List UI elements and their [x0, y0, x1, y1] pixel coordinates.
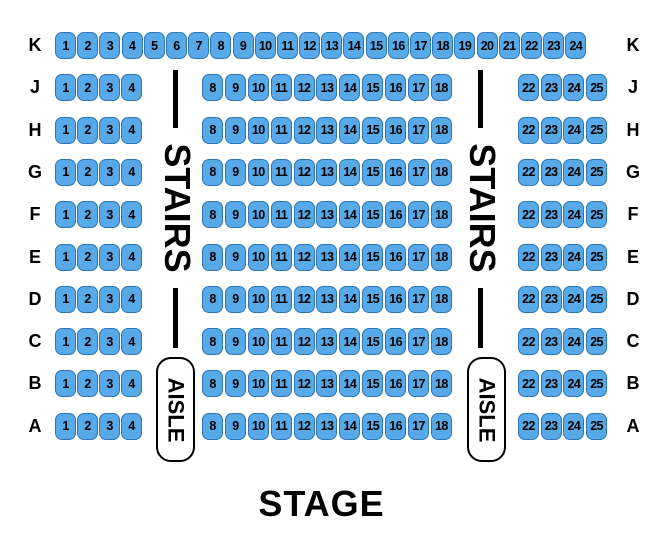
- seat-row-B: B12348910111213141516171822232425B: [0, 370, 660, 397]
- seat-D10[interactable]: 10: [248, 286, 269, 313]
- stairs-line-left-top: [173, 70, 178, 128]
- row-label-H-right: H: [613, 117, 653, 144]
- seat-B14[interactable]: 14: [339, 370, 360, 397]
- seat-K5[interactable]: 5: [144, 32, 165, 59]
- seat-group-E-middle: 89101112131415161718: [202, 244, 452, 271]
- seat-B10[interactable]: 10: [248, 370, 269, 397]
- seat-G25[interactable]: 25: [586, 159, 607, 186]
- seat-group-J-left: 1234: [55, 74, 142, 101]
- seat-B11[interactable]: 11: [271, 370, 292, 397]
- seat-E11[interactable]: 11: [271, 244, 292, 271]
- seat-K20[interactable]: 20: [477, 32, 498, 59]
- seat-F24[interactable]: 24: [563, 201, 584, 228]
- seat-C9[interactable]: 9: [225, 328, 246, 355]
- seat-B15[interactable]: 15: [362, 370, 383, 397]
- seat-C8[interactable]: 8: [202, 328, 223, 355]
- seat-E22[interactable]: 22: [518, 244, 539, 271]
- seat-E13[interactable]: 13: [316, 244, 337, 271]
- seat-F17[interactable]: 17: [408, 201, 429, 228]
- seat-D23[interactable]: 23: [541, 286, 562, 313]
- seat-J25[interactable]: 25: [586, 74, 607, 101]
- seat-E23[interactable]: 23: [541, 244, 562, 271]
- seat-H10[interactable]: 10: [248, 117, 269, 144]
- seat-D25[interactable]: 25: [586, 286, 607, 313]
- seat-C15[interactable]: 15: [362, 328, 383, 355]
- row-label-F-right: F: [613, 201, 653, 228]
- seat-J11[interactable]: 11: [271, 74, 292, 101]
- seat-J15[interactable]: 15: [362, 74, 383, 101]
- seat-K6[interactable]: 6: [166, 32, 187, 59]
- seat-F1[interactable]: 1: [55, 201, 76, 228]
- seat-A13[interactable]: 13: [316, 413, 337, 440]
- seat-H15[interactable]: 15: [362, 117, 383, 144]
- seat-row-K: K123456789101112131415161718192021222324…: [0, 32, 660, 59]
- seat-F11[interactable]: 11: [271, 201, 292, 228]
- row-label-D-left: D: [14, 286, 56, 313]
- seat-B12[interactable]: 12: [294, 370, 315, 397]
- seat-F4[interactable]: 4: [121, 201, 142, 228]
- seat-B3[interactable]: 3: [99, 370, 120, 397]
- seat-C17[interactable]: 17: [408, 328, 429, 355]
- seat-J3[interactable]: 3: [99, 74, 120, 101]
- seat-K7[interactable]: 7: [188, 32, 209, 59]
- seat-J12[interactable]: 12: [294, 74, 315, 101]
- seat-G16[interactable]: 16: [385, 159, 406, 186]
- seat-A22[interactable]: 22: [518, 413, 539, 440]
- seat-K17[interactable]: 17: [410, 32, 431, 59]
- seat-A16[interactable]: 16: [385, 413, 406, 440]
- seat-A18[interactable]: 18: [431, 413, 452, 440]
- seat-E10[interactable]: 10: [248, 244, 269, 271]
- seat-D4[interactable]: 4: [121, 286, 142, 313]
- seat-A14[interactable]: 14: [339, 413, 360, 440]
- aisle-box-left: AISLE: [156, 357, 195, 462]
- stairs-line-right-top: [478, 70, 483, 128]
- row-label-F-left: F: [14, 201, 56, 228]
- seat-group-D-middle: 89101112131415161718: [202, 286, 452, 313]
- row-label-J-left: J: [14, 74, 56, 101]
- seat-H14[interactable]: 14: [339, 117, 360, 144]
- seat-F15[interactable]: 15: [362, 201, 383, 228]
- seat-J8[interactable]: 8: [202, 74, 223, 101]
- seat-group-G-left: 1234: [55, 159, 142, 186]
- seat-J4[interactable]: 4: [121, 74, 142, 101]
- row-label-B-left: B: [14, 370, 56, 397]
- seat-A24[interactable]: 24: [563, 413, 584, 440]
- row-label-G-left: G: [14, 159, 56, 186]
- seat-F18[interactable]: 18: [431, 201, 452, 228]
- seat-D2[interactable]: 2: [77, 286, 98, 313]
- seat-row-J: J12348910111213141516171822232425J: [0, 74, 660, 101]
- seat-C16[interactable]: 16: [385, 328, 406, 355]
- row-label-E-right: E: [613, 244, 653, 271]
- seat-H11[interactable]: 11: [271, 117, 292, 144]
- seat-C22[interactable]: 22: [518, 328, 539, 355]
- seat-F9[interactable]: 9: [225, 201, 246, 228]
- seat-group-A-right: 22232425: [518, 413, 607, 440]
- seat-E16[interactable]: 16: [385, 244, 406, 271]
- seat-C3[interactable]: 3: [99, 328, 120, 355]
- seat-G12[interactable]: 12: [294, 159, 315, 186]
- seat-G9[interactable]: 9: [225, 159, 246, 186]
- seat-E14[interactable]: 14: [339, 244, 360, 271]
- seat-E17[interactable]: 17: [408, 244, 429, 271]
- seat-E18[interactable]: 18: [431, 244, 452, 271]
- seat-A1[interactable]: 1: [55, 413, 76, 440]
- seat-row-G: G12348910111213141516171822232425G: [0, 159, 660, 186]
- seat-D3[interactable]: 3: [99, 286, 120, 313]
- seat-K10[interactable]: 10: [255, 32, 276, 59]
- seat-G3[interactable]: 3: [99, 159, 120, 186]
- seat-group-A-left: 1234: [55, 413, 142, 440]
- seat-K16[interactable]: 16: [388, 32, 409, 59]
- seat-F14[interactable]: 14: [339, 201, 360, 228]
- seat-H3[interactable]: 3: [99, 117, 120, 144]
- seat-D17[interactable]: 17: [408, 286, 429, 313]
- aisle-label-right: AISLE: [474, 377, 500, 442]
- seat-group-J-middle: 89101112131415161718: [202, 74, 452, 101]
- seat-A9[interactable]: 9: [225, 413, 246, 440]
- seat-J23[interactable]: 23: [541, 74, 562, 101]
- seat-A11[interactable]: 11: [271, 413, 292, 440]
- seat-D22[interactable]: 22: [518, 286, 539, 313]
- row-label-A-right: A: [613, 413, 653, 440]
- seat-D12[interactable]: 12: [294, 286, 315, 313]
- seat-G23[interactable]: 23: [541, 159, 562, 186]
- row-label-K-left: K: [14, 32, 56, 59]
- seat-B13[interactable]: 13: [316, 370, 337, 397]
- seat-J9[interactable]: 9: [225, 74, 246, 101]
- seat-J17[interactable]: 17: [408, 74, 429, 101]
- seat-E3[interactable]: 3: [99, 244, 120, 271]
- row-label-J-right: J: [613, 74, 653, 101]
- seat-H13[interactable]: 13: [316, 117, 337, 144]
- seat-E25[interactable]: 25: [586, 244, 607, 271]
- seat-G11[interactable]: 11: [271, 159, 292, 186]
- seat-E4[interactable]: 4: [121, 244, 142, 271]
- seat-J18[interactable]: 18: [431, 74, 452, 101]
- seat-B24[interactable]: 24: [563, 370, 584, 397]
- seat-K15[interactable]: 15: [366, 32, 387, 59]
- seat-C14[interactable]: 14: [339, 328, 360, 355]
- seat-D13[interactable]: 13: [316, 286, 337, 313]
- seat-A10[interactable]: 10: [248, 413, 269, 440]
- seat-K1[interactable]: 1: [55, 32, 76, 59]
- seat-group-B-left: 1234: [55, 370, 142, 397]
- seat-J13[interactable]: 13: [316, 74, 337, 101]
- seat-K8[interactable]: 8: [210, 32, 231, 59]
- seat-group-J-right: 22232425: [518, 74, 607, 101]
- seat-B9[interactable]: 9: [225, 370, 246, 397]
- seat-K19[interactable]: 19: [454, 32, 475, 59]
- seat-B8[interactable]: 8: [202, 370, 223, 397]
- seat-F16[interactable]: 16: [385, 201, 406, 228]
- seat-group-C-middle: 89101112131415161718: [202, 328, 452, 355]
- seat-A23[interactable]: 23: [541, 413, 562, 440]
- seat-group-F-left: 1234: [55, 201, 142, 228]
- seat-H22[interactable]: 22: [518, 117, 539, 144]
- seat-C24[interactable]: 24: [563, 328, 584, 355]
- seat-J16[interactable]: 16: [385, 74, 406, 101]
- seat-G4[interactable]: 4: [121, 159, 142, 186]
- seat-K2[interactable]: 2: [77, 32, 98, 59]
- seat-C25[interactable]: 25: [586, 328, 607, 355]
- seat-D9[interactable]: 9: [225, 286, 246, 313]
- seat-H2[interactable]: 2: [77, 117, 98, 144]
- seat-A3[interactable]: 3: [99, 413, 120, 440]
- seat-C11[interactable]: 11: [271, 328, 292, 355]
- stairs-label-right: STAIRS: [461, 143, 503, 272]
- seat-K14[interactable]: 14: [343, 32, 364, 59]
- seat-group-E-left: 1234: [55, 244, 142, 271]
- row-label-G-right: G: [613, 159, 653, 186]
- seat-E8[interactable]: 8: [202, 244, 223, 271]
- row-label-H-left: H: [14, 117, 56, 144]
- seat-E9[interactable]: 9: [225, 244, 246, 271]
- seat-G8[interactable]: 8: [202, 159, 223, 186]
- seat-B16[interactable]: 16: [385, 370, 406, 397]
- seat-B2[interactable]: 2: [77, 370, 98, 397]
- seat-row-F: F12348910111213141516171822232425F: [0, 201, 660, 228]
- seat-A15[interactable]: 15: [362, 413, 383, 440]
- seat-H1[interactable]: 1: [55, 117, 76, 144]
- seat-B23[interactable]: 23: [541, 370, 562, 397]
- seat-B1[interactable]: 1: [55, 370, 76, 397]
- seat-group-H-middle: 89101112131415161718: [202, 117, 452, 144]
- row-label-A-left: A: [14, 413, 56, 440]
- seat-E24[interactable]: 24: [563, 244, 584, 271]
- row-label-B-right: B: [613, 370, 653, 397]
- seat-K23[interactable]: 23: [543, 32, 564, 59]
- seat-group-C-right: 22232425: [518, 328, 607, 355]
- seat-group-D-right: 22232425: [518, 286, 607, 313]
- seat-D15[interactable]: 15: [362, 286, 383, 313]
- seat-K9[interactable]: 9: [233, 32, 254, 59]
- seat-H12[interactable]: 12: [294, 117, 315, 144]
- seat-B22[interactable]: 22: [518, 370, 539, 397]
- aisle-label-left: AISLE: [163, 377, 189, 442]
- seat-D1[interactable]: 1: [55, 286, 76, 313]
- seat-G14[interactable]: 14: [339, 159, 360, 186]
- seat-A4[interactable]: 4: [121, 413, 142, 440]
- seat-G1[interactable]: 1: [55, 159, 76, 186]
- seat-group-B-middle: 89101112131415161718: [202, 370, 452, 397]
- seat-D16[interactable]: 16: [385, 286, 406, 313]
- seat-B17[interactable]: 17: [408, 370, 429, 397]
- seat-K21[interactable]: 21: [499, 32, 520, 59]
- seat-A25[interactable]: 25: [586, 413, 607, 440]
- seat-group-K-full: 123456789101112131415161718192021222324: [55, 32, 586, 59]
- seat-F2[interactable]: 2: [77, 201, 98, 228]
- seat-A8[interactable]: 8: [202, 413, 223, 440]
- seat-group-B-right: 22232425: [518, 370, 607, 397]
- seat-F12[interactable]: 12: [294, 201, 315, 228]
- seat-J1[interactable]: 1: [55, 74, 76, 101]
- seat-A17[interactable]: 17: [408, 413, 429, 440]
- seat-D18[interactable]: 18: [431, 286, 452, 313]
- seat-A2[interactable]: 2: [77, 413, 98, 440]
- seat-G2[interactable]: 2: [77, 159, 98, 186]
- seat-K3[interactable]: 3: [99, 32, 120, 59]
- stairs-label-left: STAIRS: [156, 143, 198, 272]
- seat-G10[interactable]: 10: [248, 159, 269, 186]
- seat-group-H-right: 22232425: [518, 117, 607, 144]
- seat-H17[interactable]: 17: [408, 117, 429, 144]
- seat-C2[interactable]: 2: [77, 328, 98, 355]
- seat-row-C: C12348910111213141516171822232425C: [0, 328, 660, 355]
- seat-K11[interactable]: 11: [277, 32, 298, 59]
- seat-B4[interactable]: 4: [121, 370, 142, 397]
- seat-C18[interactable]: 18: [431, 328, 452, 355]
- seat-H4[interactable]: 4: [121, 117, 142, 144]
- seat-F25[interactable]: 25: [586, 201, 607, 228]
- seat-K4[interactable]: 4: [122, 32, 143, 59]
- seat-row-H: H12348910111213141516171822232425H: [0, 117, 660, 144]
- seat-H8[interactable]: 8: [202, 117, 223, 144]
- seat-B25[interactable]: 25: [586, 370, 607, 397]
- seat-B18[interactable]: 18: [431, 370, 452, 397]
- row-label-C-left: C: [14, 328, 56, 355]
- seat-row-E: E12348910111213141516171822232425E: [0, 244, 660, 271]
- seat-group-C-left: 1234: [55, 328, 142, 355]
- seat-D14[interactable]: 14: [339, 286, 360, 313]
- seat-K18[interactable]: 18: [432, 32, 453, 59]
- seat-group-A-middle: 89101112131415161718: [202, 413, 452, 440]
- seat-group-F-right: 22232425: [518, 201, 607, 228]
- seat-E12[interactable]: 12: [294, 244, 315, 271]
- seat-H23[interactable]: 23: [541, 117, 562, 144]
- aisle-box-right: AISLE: [467, 357, 506, 462]
- seat-H18[interactable]: 18: [431, 117, 452, 144]
- seat-C13[interactable]: 13: [316, 328, 337, 355]
- seat-C1[interactable]: 1: [55, 328, 76, 355]
- seat-G13[interactable]: 13: [316, 159, 337, 186]
- row-label-K-right: K: [613, 32, 653, 59]
- seat-E1[interactable]: 1: [55, 244, 76, 271]
- seat-H9[interactable]: 9: [225, 117, 246, 144]
- seat-F3[interactable]: 3: [99, 201, 120, 228]
- seat-J22[interactable]: 22: [518, 74, 539, 101]
- seat-G17[interactable]: 17: [408, 159, 429, 186]
- seat-group-E-right: 22232425: [518, 244, 607, 271]
- seat-J24[interactable]: 24: [563, 74, 584, 101]
- stairs-line-left-bottom: [173, 288, 178, 348]
- seat-D24[interactable]: 24: [563, 286, 584, 313]
- seat-K22[interactable]: 22: [521, 32, 542, 59]
- seat-row-A: A12348910111213141516171822232425A: [0, 413, 660, 440]
- seat-J10[interactable]: 10: [248, 74, 269, 101]
- seat-H25[interactable]: 25: [586, 117, 607, 144]
- seat-E2[interactable]: 2: [77, 244, 98, 271]
- seat-C12[interactable]: 12: [294, 328, 315, 355]
- seat-F23[interactable]: 23: [541, 201, 562, 228]
- seat-E15[interactable]: 15: [362, 244, 383, 271]
- seat-G22[interactable]: 22: [518, 159, 539, 186]
- seat-F8[interactable]: 8: [202, 201, 223, 228]
- seat-group-G-middle: 89101112131415161718: [202, 159, 452, 186]
- seat-group-H-left: 1234: [55, 117, 142, 144]
- row-label-D-right: D: [613, 286, 653, 313]
- stage-label: STAGE: [55, 483, 588, 525]
- seat-K24[interactable]: 24: [565, 32, 586, 59]
- seat-G15[interactable]: 15: [362, 159, 383, 186]
- seat-K12[interactable]: 12: [299, 32, 320, 59]
- seat-C4[interactable]: 4: [121, 328, 142, 355]
- row-label-C-right: C: [613, 328, 653, 355]
- seating-chart: K123456789101112131415161718192021222324…: [0, 0, 660, 541]
- seat-group-D-left: 1234: [55, 286, 142, 313]
- seat-H24[interactable]: 24: [563, 117, 584, 144]
- seat-group-G-right: 22232425: [518, 159, 607, 186]
- seat-H16[interactable]: 16: [385, 117, 406, 144]
- seat-G18[interactable]: 18: [431, 159, 452, 186]
- seat-D8[interactable]: 8: [202, 286, 223, 313]
- seat-row-D: D12348910111213141516171822232425D: [0, 286, 660, 313]
- seat-F13[interactable]: 13: [316, 201, 337, 228]
- seat-group-F-middle: 89101112131415161718: [202, 201, 452, 228]
- stairs-line-right-bottom: [478, 288, 483, 348]
- seat-F22[interactable]: 22: [518, 201, 539, 228]
- seat-C23[interactable]: 23: [541, 328, 562, 355]
- seat-G24[interactable]: 24: [563, 159, 584, 186]
- seat-A12[interactable]: 12: [294, 413, 315, 440]
- seat-J2[interactable]: 2: [77, 74, 98, 101]
- row-label-E-left: E: [14, 244, 56, 271]
- seat-F10[interactable]: 10: [248, 201, 269, 228]
- seat-K13[interactable]: 13: [321, 32, 342, 59]
- seat-J14[interactable]: 14: [339, 74, 360, 101]
- seat-D11[interactable]: 11: [271, 286, 292, 313]
- seat-C10[interactable]: 10: [248, 328, 269, 355]
